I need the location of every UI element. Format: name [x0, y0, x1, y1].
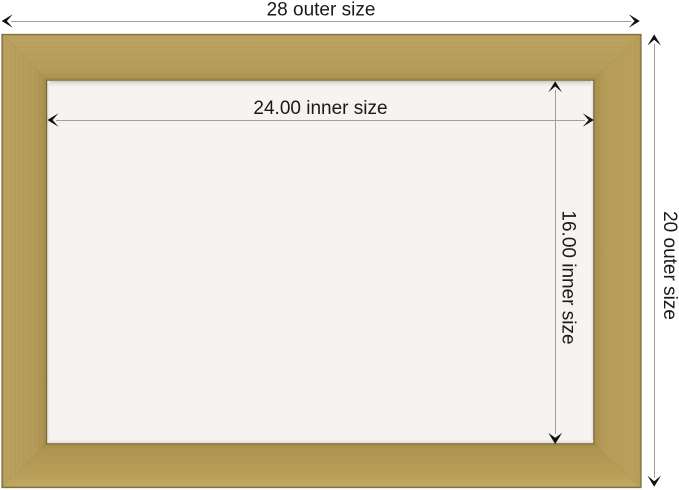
svg-text:20 outer size: 20 outer size [659, 211, 679, 320]
svg-text:28 outer size: 28 outer size [267, 0, 376, 21]
svg-text:24.00 inner size: 24.00 inner size [253, 98, 387, 119]
svg-text:16.00 inner size: 16.00 inner size [558, 210, 579, 344]
